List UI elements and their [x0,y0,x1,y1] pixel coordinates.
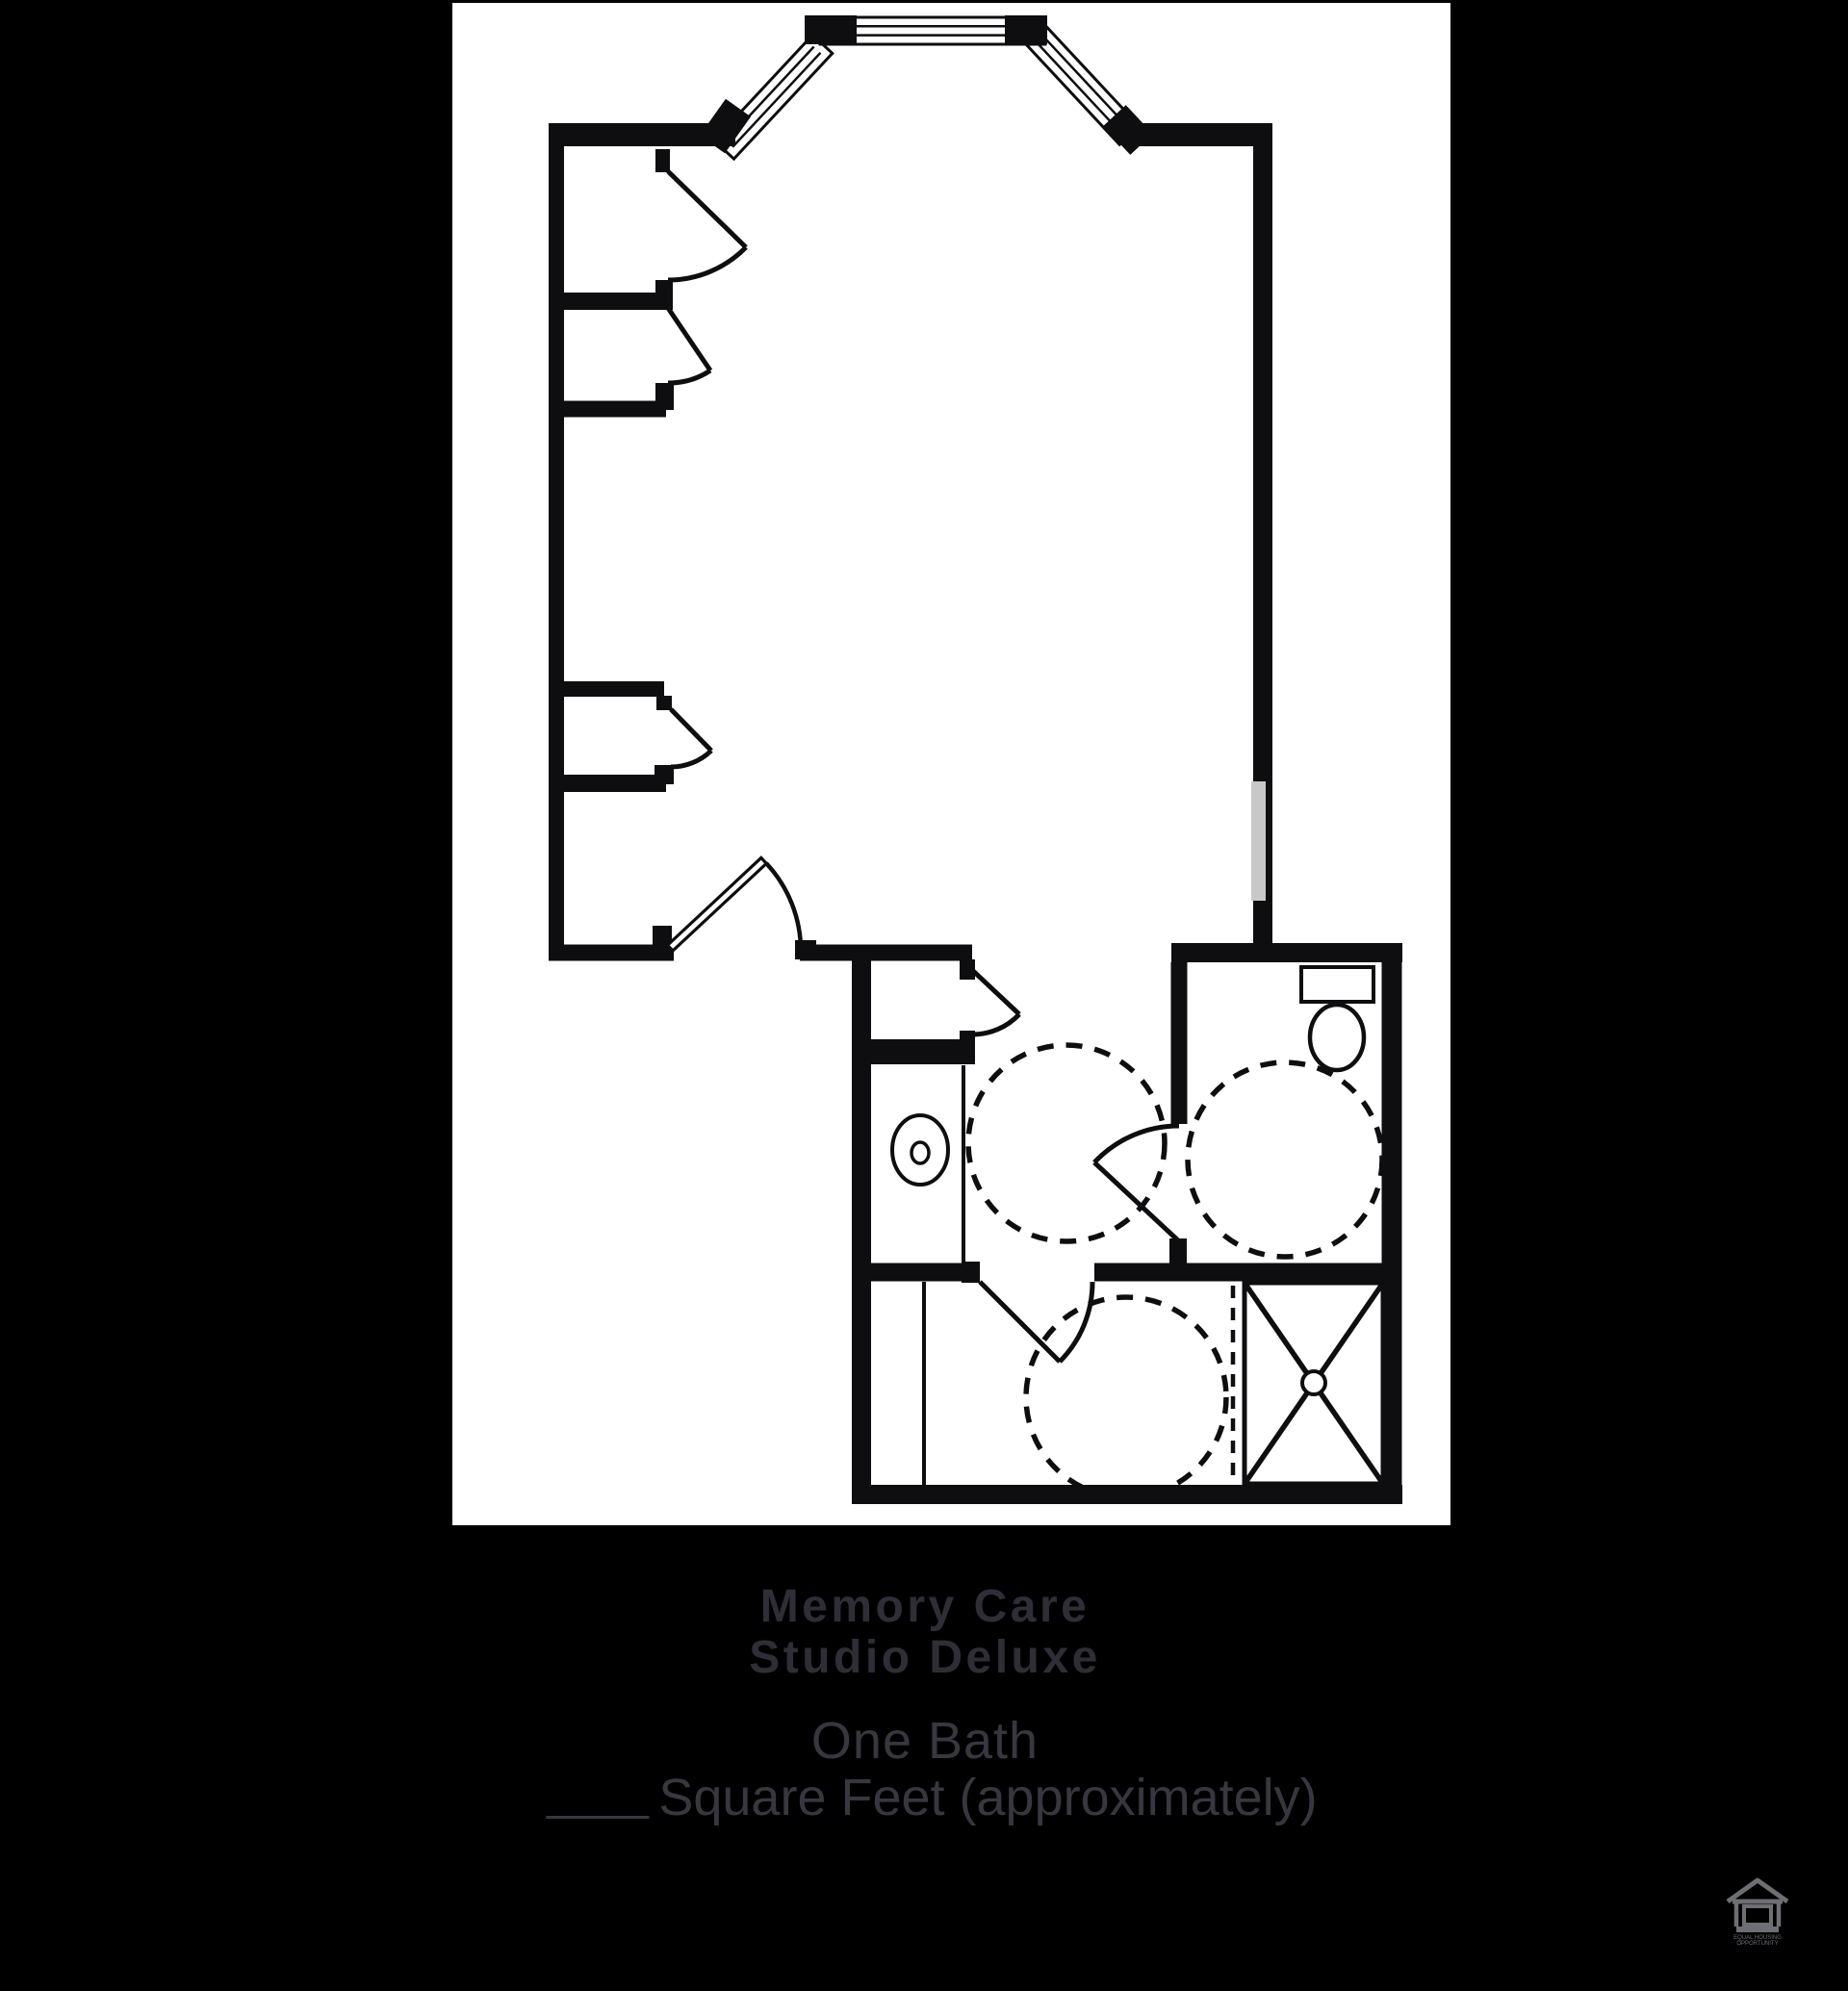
equal-housing-icon: EQUAL HOUSING OPPORTUNITY [1724,1876,1791,1946]
bath-count-label: One Bath [811,1715,1039,1767]
equal-housing-text-line2: OPPORTUNITY [1736,1941,1778,1946]
wall-window-gray [1251,781,1266,901]
floor-plan [0,0,1848,1991]
page-root: Memory Care Studio Deluxe One Bath Squar… [0,0,1848,1991]
square-feet-line: Square Feet (approximately) [546,1772,1317,1824]
plan-title-line2: Studio Deluxe [749,1635,1101,1681]
square-feet-label: Square Feet (approximately) [658,1769,1317,1826]
square-feet-blank-line [546,1814,649,1819]
plan-title-line1: Memory Care [760,1584,1091,1630]
artwork-panel [452,3,1450,1525]
